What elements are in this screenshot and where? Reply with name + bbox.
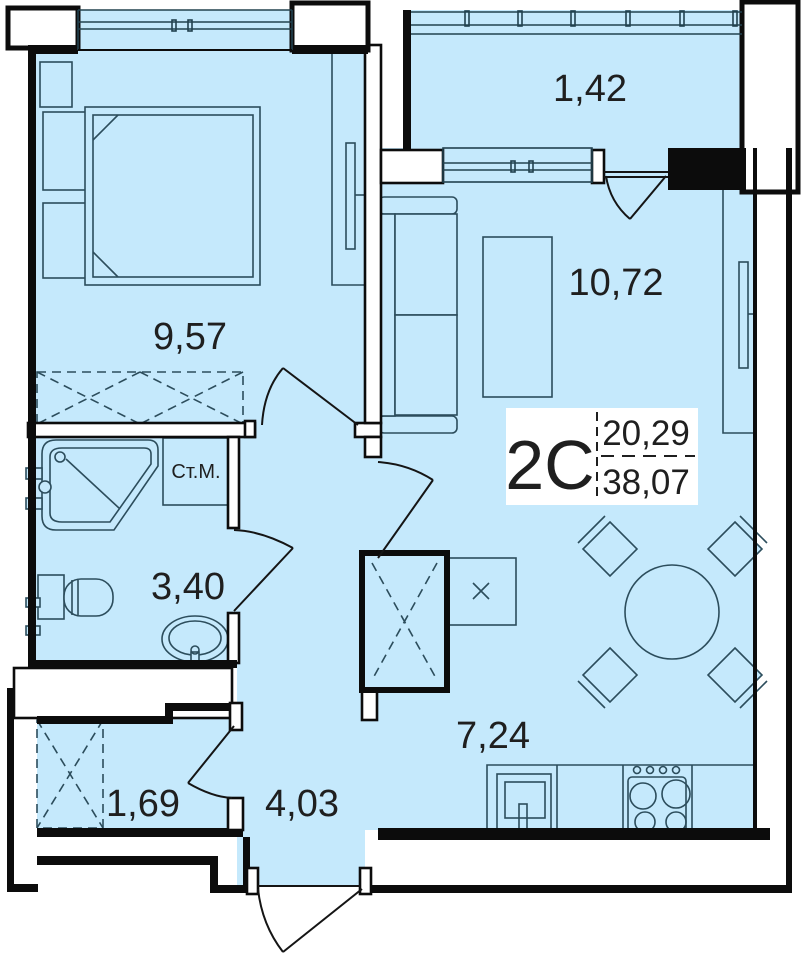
wall-hall-kitchen-stub — [362, 690, 377, 720]
sofa — [379, 197, 457, 433]
dresser — [40, 62, 72, 107]
floor-plan: 2С 20,29 38,07 9,57 1,42 10,72 3,40 1,69… — [0, 0, 805, 960]
bedroom-area-label: 9,57 — [153, 316, 227, 358]
wall-right-inner — [753, 148, 757, 832]
entry-door — [258, 886, 362, 952]
wall-living-west-stub — [365, 437, 381, 457]
bedroom-bay-floor — [78, 10, 292, 52]
unit-label-block: 2С 20,29 38,07 — [505, 408, 698, 505]
wall-facade-niche — [37, 856, 218, 865]
hallway-area-label: 4,03 — [265, 783, 339, 825]
pier-top-left — [8, 8, 78, 48]
wall-bottom-right — [371, 885, 792, 893]
sofa-seat-1 — [395, 214, 457, 315]
wall-storage-south — [37, 828, 243, 837]
wall-bathroom-south — [28, 660, 237, 668]
jamb-bedroom-door — [245, 421, 255, 437]
bed — [85, 107, 260, 285]
bathroom-area-label: 3,40 — [151, 566, 225, 608]
balcony-area-label: 1,42 — [553, 68, 627, 110]
wall-bedroom-living — [365, 45, 381, 423]
pier-top-middle — [292, 3, 368, 50]
dining-table — [625, 565, 719, 659]
sofa-armrest-bottom — [379, 416, 457, 433]
wall-storage-north-a — [37, 716, 172, 724]
wall-right-outer — [786, 148, 792, 893]
jamb-entry-left — [247, 868, 258, 894]
wall-balcony-west — [403, 10, 411, 150]
wall-balcony-pier-east — [668, 148, 746, 190]
bath-tap-knob — [39, 481, 51, 493]
wall-bedroom-south-right — [355, 423, 381, 437]
sofa-armrest-top — [379, 197, 457, 214]
wall-bathroom-east-upper — [228, 437, 239, 528]
sofa-seat-2 — [395, 315, 457, 415]
living-door-gap-floor — [365, 455, 378, 560]
washing-machine-label: Ст.М. — [171, 461, 220, 483]
wall-left-upper — [28, 45, 36, 668]
toilet-tank — [38, 575, 64, 619]
unit-total-area: 38,07 — [602, 463, 690, 502]
living-area-label: 10,72 — [568, 262, 663, 304]
unit-type-label: 2С — [505, 426, 594, 504]
nightstand-bottom — [43, 203, 88, 278]
wall-balcony-pier-west — [381, 150, 443, 183]
jamb-storage-lower — [228, 798, 243, 830]
wall-bathroom-east-lower — [228, 613, 239, 663]
wall-window-jamb — [592, 150, 604, 183]
floor-plan-svg: 2С 20,29 38,07 9,57 1,42 10,72 3,40 1,69… — [0, 0, 805, 960]
nightstand-top — [43, 112, 88, 190]
jamb-storage-upper — [230, 703, 242, 730]
wall-left-lower — [7, 688, 14, 890]
wall-kitchen-south — [378, 828, 770, 840]
kitchen-area-label: 7,24 — [456, 715, 530, 757]
wall-bedroom-north-right — [292, 45, 368, 54]
wall-bedroom-north-left — [28, 45, 78, 54]
unit-living-area: 20,29 — [602, 414, 690, 453]
wall-storage-north-b — [170, 703, 232, 711]
kitchen-passage-floor — [362, 718, 378, 830]
wall-bedroom-south-left — [28, 423, 255, 437]
storage-area-label: 1,69 — [106, 783, 180, 825]
wall-bottom-left-cap — [7, 884, 38, 892]
